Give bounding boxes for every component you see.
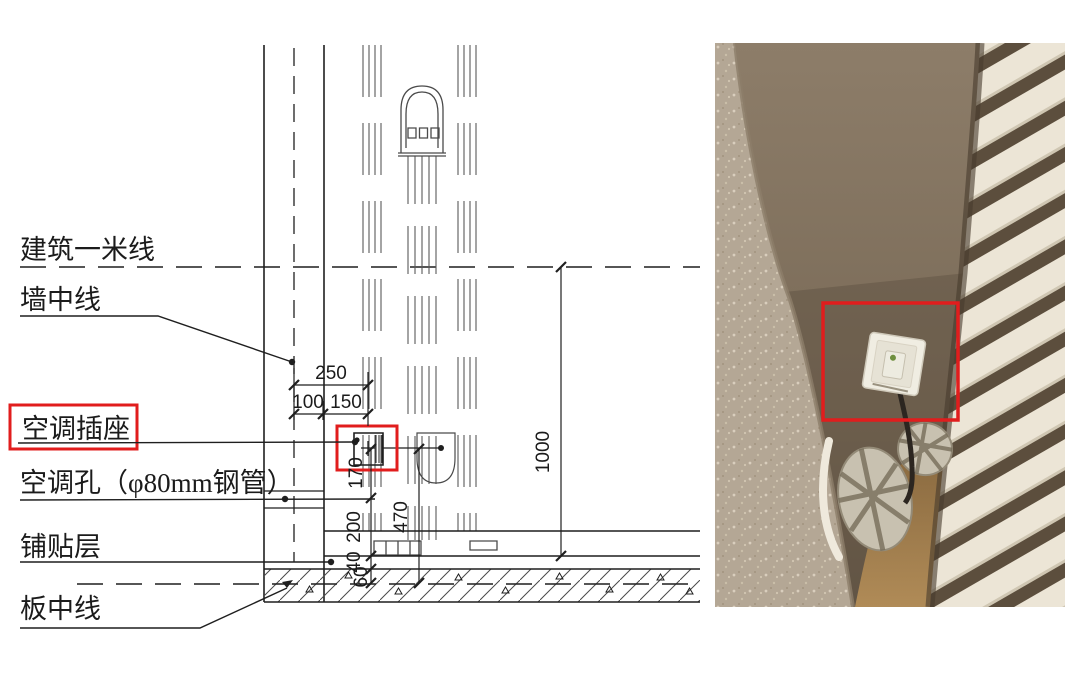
label-slab-center-line: 板中线	[20, 580, 293, 628]
dim-200: 200	[344, 511, 365, 543]
wall-section	[264, 45, 324, 602]
label-tile-layer: 铺贴层	[20, 532, 334, 565]
label-ac-hole: 空调孔（φ80mm钢管）	[20, 468, 375, 502]
dim-250: 250	[315, 363, 347, 384]
dim-1000: 1000	[533, 431, 554, 473]
dimensions	[289, 262, 566, 588]
label-wall-center-line: 墙中线	[20, 285, 295, 365]
label-text: 板中线	[20, 594, 101, 624]
label-text: 空调孔（φ80mm钢管）	[20, 468, 294, 498]
ac-socket-symbol	[354, 433, 444, 465]
dim-170: 170	[346, 457, 367, 489]
label-one-meter-line: 建筑一米线	[20, 235, 155, 265]
label-text: 空调插座	[22, 414, 130, 444]
label-text: 墙中线	[20, 285, 101, 315]
dimension-texts: 250 100 150 170 200 40 60 470 1000	[292, 363, 554, 588]
dim-470: 470	[391, 501, 412, 533]
site-photo	[715, 43, 1065, 607]
installation-detail-drawing: 建筑一米线 墙中线 空调插座 空调孔（φ80mm钢管） 铺贴层 板中线	[0, 0, 710, 691]
label-text: 铺贴层	[20, 532, 101, 562]
dim-60: 60	[351, 566, 372, 587]
dim-150: 150	[330, 392, 362, 413]
label-text: 建筑一米线	[20, 235, 155, 265]
dim-100: 100	[292, 392, 324, 413]
wall-socket	[862, 332, 926, 396]
